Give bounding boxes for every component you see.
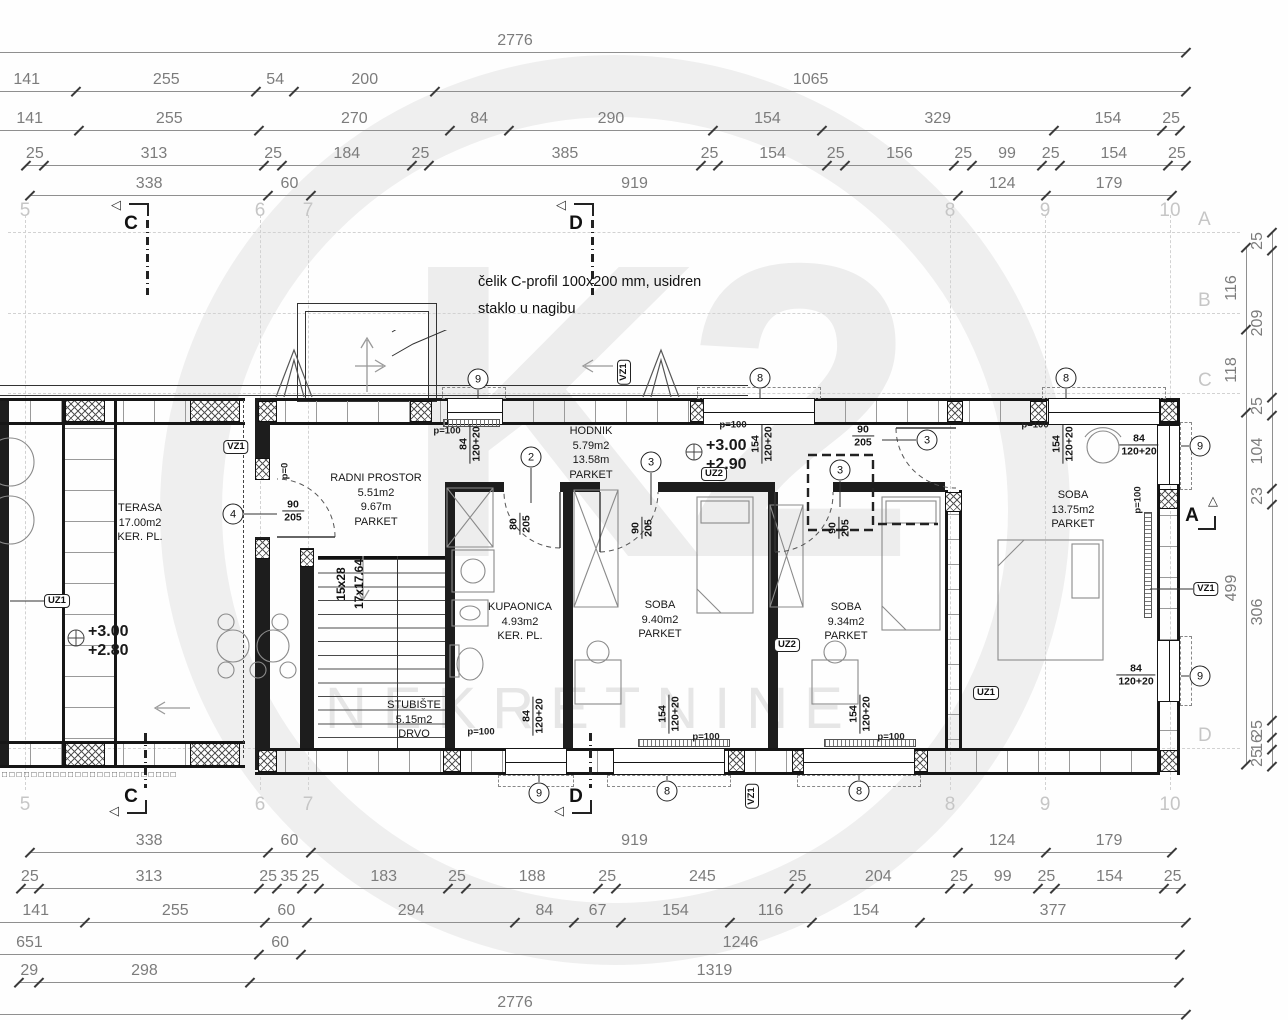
opening-tag-circle: 2 (521, 447, 542, 468)
dim-label: 23 (1249, 487, 1267, 505)
grid-label-column: 7 (303, 200, 314, 222)
section-letter-A: A (1185, 505, 1199, 527)
wall-tag-uz2: UZ2 (774, 638, 800, 652)
room-label-line: 9.34m2 (824, 615, 867, 630)
parapet-label: p=100 (1021, 420, 1048, 431)
dim-label: 116 (758, 902, 784, 920)
dim-line (1272, 232, 1273, 766)
opening-dimension: 84120+20 (1119, 432, 1158, 457)
opening-dimension: 154120+20 (847, 694, 872, 733)
opening-dimension: 154120+20 (749, 424, 774, 463)
dim-numerator: 84 (1116, 662, 1155, 675)
dim-denominator: 120+20 (1064, 424, 1076, 463)
parapet-label: p=100 (1133, 486, 1144, 513)
opening-tag-circle: 8 (1056, 368, 1077, 389)
parapet-label: p=100 (719, 420, 746, 431)
dim-label: 60 (277, 902, 295, 920)
dim-label: 200 (351, 71, 378, 89)
grid-label-row: A (1198, 209, 1211, 231)
dim-label: 338 (136, 832, 163, 850)
stair-riser-label: 15x28 (334, 567, 348, 600)
stair-tread-label: 17x17.64 (352, 559, 366, 609)
room-label-line: RADNI PROSTOR (330, 471, 421, 486)
opening-tag-circle: 3 (641, 452, 662, 473)
dim-line (0, 1014, 1186, 1015)
dim-label: 377 (1040, 902, 1067, 920)
opening-dimension: 80205 (507, 513, 532, 535)
dim-label: 25 (301, 868, 319, 886)
dim-label: 25 (26, 145, 44, 163)
wall-tag-uz2: UZ2 (701, 467, 727, 481)
dim-numerator: 90 (282, 498, 304, 511)
room-label-line: STUBIŠTE (387, 698, 441, 713)
dim-label: 1246 (723, 934, 759, 952)
dim-denominator: 120+20 (861, 694, 873, 733)
room-label-line: SOBA (638, 598, 681, 613)
opening-dimension: 84120+20 (1116, 662, 1155, 687)
room-label-line: 5.15m2 (387, 713, 441, 728)
opening-dimension: 84120+20 (520, 696, 545, 735)
section-arrow-icon: ◁ (109, 803, 119, 819)
section-cut-line (146, 220, 149, 295)
wall-tag-vz1: VZ1 (1193, 582, 1218, 596)
room-label-line: TERASA (117, 501, 162, 516)
dim-label: 84 (535, 902, 553, 920)
dim-numerator: 154 (656, 694, 669, 733)
parapet-label: p=100 (692, 732, 719, 743)
section-bracket (574, 203, 594, 205)
section-bracket (129, 203, 149, 205)
level-value: +2.80 (88, 641, 128, 660)
section-cut-line (589, 733, 592, 788)
dim-label: 124 (989, 175, 1016, 193)
opening-tag-circle: 9 (529, 783, 550, 804)
dim-label: 25 (950, 868, 968, 886)
section-bracket (1214, 516, 1216, 530)
dim-label: 2776 (497, 994, 533, 1012)
dim-label: 183 (370, 868, 397, 886)
dim-label: 499 (1223, 575, 1241, 602)
opening-dimension: 84120+20 (457, 424, 482, 463)
dim-numerator: 84 (520, 696, 533, 735)
dim-line (0, 130, 1180, 131)
dim-label: 154 (759, 145, 786, 163)
parapet-label: p=100 (433, 426, 460, 437)
dim-label: 25 (598, 868, 616, 886)
dim-label: 290 (598, 110, 625, 128)
dim-label: 298 (131, 962, 158, 980)
opening-dimension: 90205 (629, 517, 654, 539)
room-label-line: PARKET (638, 627, 681, 642)
dim-label: 651 (16, 934, 43, 952)
room-label-line: PARKET (330, 515, 421, 530)
section-letter-C: C (124, 786, 138, 808)
parapet-label: p=0 (280, 463, 291, 480)
level-value: +3.00 (706, 436, 746, 455)
grid-line-row (8, 232, 1240, 233)
dim-label: 255 (162, 902, 189, 920)
dim-label: 141 (13, 71, 40, 89)
section-cut-line (144, 733, 147, 788)
dim-line (26, 165, 1186, 166)
dim-label: 294 (398, 902, 425, 920)
opening-dimension: 90205 (282, 498, 304, 523)
dim-label: 25 (954, 145, 972, 163)
dim-line (30, 852, 1172, 853)
room-label-line: PARKET (824, 629, 867, 644)
wall-tag-vz1: VZ1 (223, 440, 248, 454)
room-label-line: 5.51m2 (330, 485, 421, 500)
opening-tag-circle: 9 (1190, 666, 1211, 687)
grid-label-column: 9 (1040, 200, 1051, 222)
dim-label: 25 (1038, 868, 1056, 886)
dim-numerator: 154 (749, 424, 762, 463)
room-label-line: 13.75m2 (1051, 503, 1094, 518)
room-label-hodnik: HODNIK5.79m213.58mPARKET (569, 424, 612, 482)
opening-dimension: 90205 (852, 423, 874, 448)
dim-label: 154 (1095, 110, 1122, 128)
grid-line-row (8, 313, 1240, 314)
dim-denominator: 120+20 (471, 424, 483, 463)
room-label-line: 9.67m (330, 500, 421, 515)
dim-label: 919 (621, 832, 648, 850)
room-label-line: DRVO (387, 727, 441, 742)
dim-label: 99 (994, 868, 1012, 886)
dim-label: 204 (865, 868, 892, 886)
dim-denominator: 205 (643, 517, 655, 539)
section-bracket (572, 812, 592, 814)
section-arrow-icon: △ (1208, 493, 1218, 509)
room-label-kupaonica: KUPAONICA4.93m2KER. PL. (488, 600, 552, 644)
grid-label-column: 8 (945, 200, 956, 222)
dim-label: 25 (1162, 110, 1180, 128)
level-mark-terrace: +3.00 +2.80 (88, 622, 128, 660)
dim-label: 25 (1042, 145, 1060, 163)
dim-label: 245 (689, 868, 716, 886)
room-label-line: 5.79m2 (569, 438, 612, 453)
opening-tag-circle: 9 (468, 369, 489, 390)
section-letter-D: D (569, 786, 583, 808)
dim-label: 116 (1223, 275, 1241, 301)
annotation-steel-profile: čelik C-profil 100x200 mm, usidren (478, 274, 701, 290)
opening-tag-circle: 9 (1190, 436, 1211, 457)
dim-denominator: 120+20 (670, 694, 682, 733)
dim-label: 25 (827, 145, 845, 163)
opening-tag-circle: 3 (830, 460, 851, 481)
plan-symbols (0, 330, 1240, 820)
dim-label: 29 (20, 962, 38, 980)
dim-denominator: 205 (840, 517, 852, 539)
dim-line (0, 52, 1186, 53)
room-label-radni-prostor: RADNI PROSTOR5.51m29.67mPARKET (330, 471, 421, 529)
dim-label: 385 (552, 145, 579, 163)
level-value: +3.00 (88, 622, 128, 641)
dim-label: 209 (1249, 310, 1267, 337)
dim-label: 25 (448, 868, 466, 886)
room-label-soba: SOBA9.40m2PARKET (638, 598, 681, 642)
opening-tag-circle: 8 (750, 368, 771, 389)
dim-label: 179 (1096, 832, 1123, 850)
room-label-line: PARKET (1051, 517, 1094, 532)
dim-label: 154 (1100, 145, 1127, 163)
dim-label: 141 (22, 902, 49, 920)
wall-tag-uz1: UZ1 (973, 686, 999, 700)
dim-line (0, 954, 1180, 955)
dim-label: 67 (589, 902, 607, 920)
room-label-line: 4.93m2 (488, 615, 552, 630)
opening-tag-circle: 8 (657, 781, 678, 802)
dim-label: 84 (470, 110, 488, 128)
dim-label: 255 (153, 71, 180, 89)
dim-label: 313 (141, 145, 168, 163)
opening-dimension: 154120+20 (656, 694, 681, 733)
opening-dimension: 154120+20 (1050, 424, 1075, 463)
room-label-line: KUPAONICA (488, 600, 552, 615)
room-label-line: KER. PL. (488, 629, 552, 644)
dim-label: 25 (259, 868, 277, 886)
dim-label: 154 (662, 902, 689, 920)
dim-line (30, 195, 1172, 196)
dim-label: 60 (281, 175, 299, 193)
dim-label: 338 (136, 175, 163, 193)
section-bracket (590, 800, 592, 814)
dim-label: 306 (1249, 599, 1267, 626)
room-label-line: 17.00m2 (117, 516, 162, 531)
dim-label: 25 (1249, 232, 1267, 250)
dim-label: 35 (280, 868, 298, 886)
dim-label: 179 (1096, 175, 1123, 193)
dim-label: 270 (341, 110, 368, 128)
section-arrow-icon: ◁ (111, 197, 121, 213)
room-label-line: KER. PL. (117, 530, 162, 545)
room-label-line: 13.58m (569, 453, 612, 468)
dim-label: 104 (1249, 438, 1267, 465)
dim-label: 329 (924, 110, 951, 128)
room-label-line: SOBA (1051, 488, 1094, 503)
dim-label: 25 (1249, 397, 1267, 415)
dim-numerator: 154 (847, 694, 860, 733)
wall-tag-vz1: VZ1 (745, 783, 759, 808)
room-label-terasa: TERASA17.00m2KER. PL. (117, 501, 162, 545)
dim-label: 156 (886, 145, 913, 163)
floor-plan-page: K2 NEKRETNINE 55667788991010ABCD □□□□□□□… (0, 0, 1288, 1020)
dim-label: 188 (519, 868, 546, 886)
dim-label: 141 (16, 110, 43, 128)
dim-label: 313 (136, 868, 163, 886)
dim-label: 25 (1168, 145, 1186, 163)
dim-numerator: 154 (1050, 424, 1063, 463)
parapet-label: p=100 (467, 727, 494, 738)
dim-label: 154 (754, 110, 781, 128)
dim-line (1246, 247, 1247, 764)
dim-label: 99 (998, 145, 1016, 163)
dim-denominator: 120+20 (534, 696, 546, 735)
section-bracket (147, 203, 149, 216)
section-arrow-icon: ◁ (554, 803, 564, 819)
room-label-line: 9.40m2 (638, 613, 681, 628)
leader-lines (10, 330, 1193, 782)
dim-label: 25 (1164, 868, 1182, 886)
dim-label: 255 (156, 110, 183, 128)
dim-denominator: 205 (282, 512, 304, 524)
dim-numerator: 84 (1119, 432, 1158, 445)
dim-label: 919 (621, 175, 648, 193)
room-label-soba: SOBA13.75m2PARKET (1051, 488, 1094, 532)
section-cut-line (591, 220, 594, 295)
room-label-soba: SOBA9.34m2PARKET (824, 600, 867, 644)
room-label-line: PARKET (569, 468, 612, 483)
opening-dimension: 90205 (826, 517, 851, 539)
dim-denominator: 205 (852, 437, 874, 449)
dim-denominator: 120+20 (1119, 446, 1158, 458)
dim-line (21, 888, 1181, 889)
dim-label: 25 (1249, 749, 1267, 767)
section-arrow-icon: ◁ (556, 197, 566, 213)
dim-numerator: 90 (629, 517, 642, 539)
dim-label: 54 (266, 71, 284, 89)
dim-label: 184 (333, 145, 360, 163)
room-label-stubi-te: STUBIŠTE5.15m2DRVO (387, 698, 441, 742)
section-bracket (127, 812, 147, 814)
dim-label: 25 (21, 868, 39, 886)
opening-tag-circle: 8 (849, 781, 870, 802)
room-label-line: HODNIK (569, 424, 612, 439)
grid-label-column: 6 (255, 200, 266, 222)
dim-numerator: 90 (826, 517, 839, 539)
section-letter-D: D (569, 213, 583, 235)
dim-label: 154 (1096, 868, 1123, 886)
dim-label: 118 (1223, 358, 1241, 384)
dim-numerator: 80 (507, 513, 520, 535)
dim-denominator: 205 (521, 513, 533, 535)
dim-label: 25 (789, 868, 807, 886)
section-bracket (145, 800, 147, 814)
dim-label: 25 (264, 145, 282, 163)
opening-tag-circle: 3 (917, 430, 938, 451)
dim-line (0, 91, 1186, 92)
dim-label: 25 (701, 145, 719, 163)
section-letter-C: C (124, 213, 138, 235)
dim-label: 60 (281, 832, 299, 850)
opening-tag-circle: 4 (223, 504, 244, 525)
dim-label: 1065 (793, 71, 829, 89)
dim-line (19, 982, 1179, 983)
dim-label: 60 (271, 934, 289, 952)
section-bracket (592, 203, 594, 216)
parapet-label: p=100 (877, 732, 904, 743)
wall-tag-uz1: UZ1 (44, 594, 70, 608)
dim-label: 1319 (697, 962, 733, 980)
dim-line (0, 922, 1186, 923)
dim-numerator: 90 (852, 423, 874, 436)
dim-label: 124 (989, 832, 1016, 850)
annotation-glass: staklo u nagibu (478, 301, 576, 317)
room-label-line: SOBA (824, 600, 867, 615)
wall-tag-vz1: VZ1 (617, 359, 631, 384)
dim-label: 154 (852, 902, 879, 920)
dim-label: 2776 (497, 32, 533, 50)
grid-label-row: B (1198, 290, 1211, 312)
grid-label-column: 10 (1159, 200, 1180, 222)
dim-label: 25 (412, 145, 430, 163)
dim-denominator: 120+20 (763, 424, 775, 463)
dim-denominator: 120+20 (1116, 676, 1155, 688)
grid-label-column: 5 (20, 200, 31, 222)
